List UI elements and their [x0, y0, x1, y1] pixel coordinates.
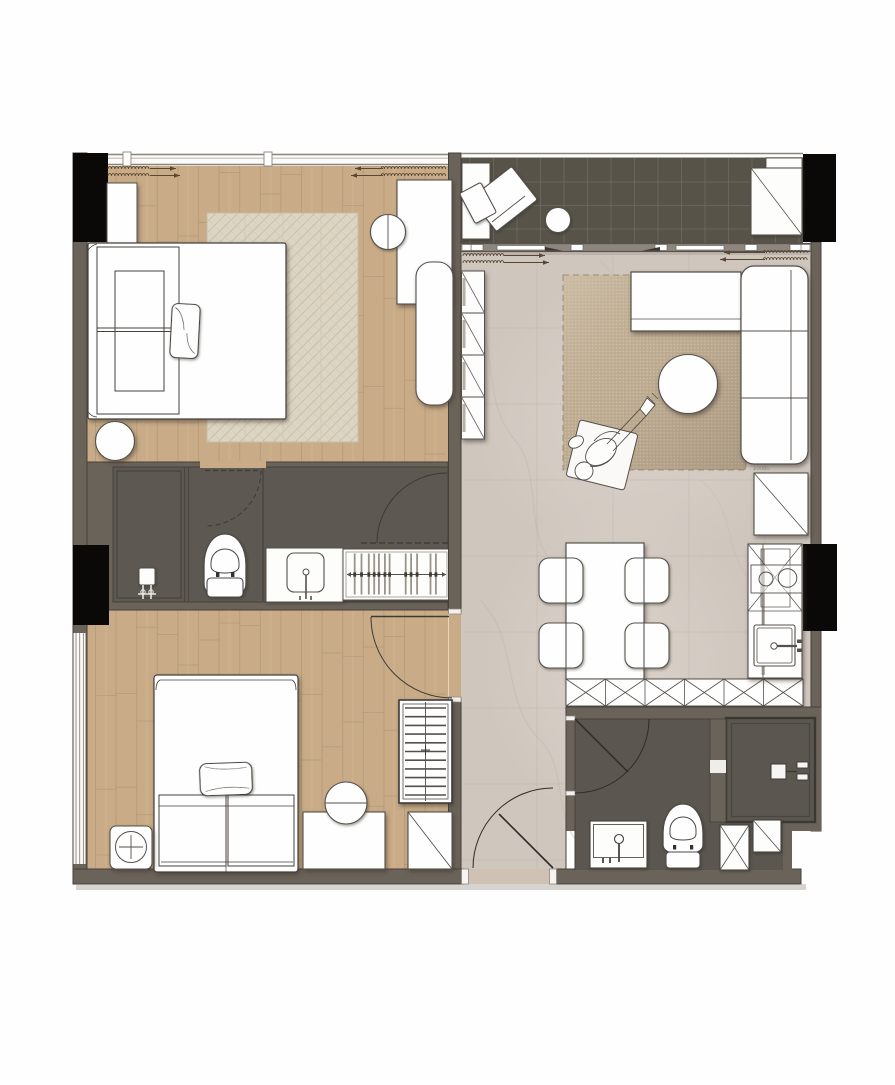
svg-text:10000: 10000	[753, 466, 770, 472]
